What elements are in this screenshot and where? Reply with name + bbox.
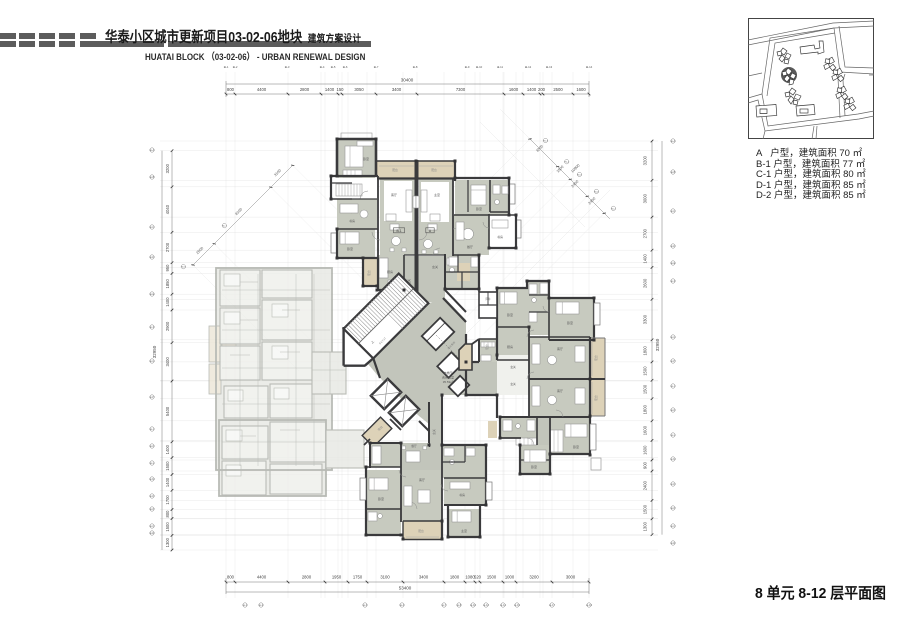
svg-text:Re-7: Re-7 xyxy=(222,226,228,228)
svg-text:1800: 1800 xyxy=(450,575,460,580)
svg-text:⊕-5: ⊕-5 xyxy=(331,65,336,69)
svg-text:3100: 3100 xyxy=(380,575,390,580)
svg-text:客厅: 客厅 xyxy=(557,388,563,393)
svg-text:阳台: 阳台 xyxy=(367,270,371,276)
svg-text:客厅: 客厅 xyxy=(557,346,563,351)
svg-text:⊕-4: ⊕-4 xyxy=(320,65,325,69)
svg-text:主室: 主室 xyxy=(434,192,440,197)
svg-text:⊕-3: ⊕-3 xyxy=(285,65,290,69)
svg-text:800: 800 xyxy=(165,510,170,518)
svg-text:⊕-A: ⊕-A xyxy=(150,149,155,152)
svg-text:1600: 1600 xyxy=(643,425,648,435)
svg-text:玄关: 玄关 xyxy=(432,264,438,269)
svg-text:4400: 4400 xyxy=(257,87,267,92)
svg-text:阳台: 阳台 xyxy=(431,168,437,172)
svg-text:⊕-H: ⊕-H xyxy=(150,396,155,399)
svg-text:1600: 1600 xyxy=(509,87,519,92)
svg-text:1400: 1400 xyxy=(165,444,170,454)
svg-text:⊕-14: ⊕-14 xyxy=(586,65,593,69)
svg-text:⊕-Q: ⊕-Q xyxy=(150,525,155,528)
svg-text:⊕-E: ⊕-E xyxy=(671,262,676,265)
svg-text:卧室: 卧室 xyxy=(363,156,369,161)
svg-text:2800: 2800 xyxy=(302,575,312,580)
svg-text:32950: 32950 xyxy=(152,345,157,358)
svg-text:⊕-10: ⊕-10 xyxy=(476,65,483,69)
svg-text:⊕-14: ⊕-14 xyxy=(500,604,506,607)
svg-text:⊕-M: ⊕-M xyxy=(670,458,675,461)
svg-text:3300: 3300 xyxy=(643,314,648,324)
svg-text:合用前室: 合用前室 xyxy=(442,375,454,380)
svg-text:2800: 2800 xyxy=(300,87,310,92)
svg-text:⊕-G: ⊕-G xyxy=(671,336,676,339)
svg-text:⊕-3: ⊕-3 xyxy=(363,604,368,607)
svg-text:53400: 53400 xyxy=(399,586,412,591)
svg-text:2700: 2700 xyxy=(165,242,170,252)
svg-text:1800: 1800 xyxy=(643,346,648,356)
svg-text:⊕-K: ⊕-K xyxy=(150,445,155,448)
svg-text:⊕-13: ⊕-13 xyxy=(546,65,553,69)
svg-text:⊕-7: ⊕-7 xyxy=(374,65,379,69)
svg-text:2900: 2900 xyxy=(165,321,170,331)
svg-text:Re-4: Re-4 xyxy=(564,162,570,164)
svg-text:⊕-A: ⊕-A xyxy=(671,140,676,143)
svg-text:1400: 1400 xyxy=(325,87,335,92)
svg-text:⊕-K: ⊕-K xyxy=(671,409,676,412)
svg-text:卧室: 卧室 xyxy=(476,206,482,211)
svg-text:客厅: 客厅 xyxy=(419,477,425,482)
svg-text:3000: 3000 xyxy=(566,575,576,580)
svg-text:主室: 主室 xyxy=(461,528,467,533)
svg-text:⊕-E: ⊕-E xyxy=(150,293,155,296)
svg-text:4040: 4040 xyxy=(165,204,170,214)
svg-text:800: 800 xyxy=(227,575,235,580)
svg-text:⊕-C: ⊕-C xyxy=(150,226,155,229)
svg-text:⊕-9: ⊕-9 xyxy=(465,65,470,69)
svg-text:⊕-L: ⊕-L xyxy=(671,434,676,437)
svg-text:⊕-1: ⊕-1 xyxy=(224,65,229,69)
svg-text:1400: 1400 xyxy=(527,87,537,92)
svg-text:⊕-M: ⊕-M xyxy=(149,478,154,481)
svg-text:30400: 30400 xyxy=(401,78,414,83)
svg-text:1500: 1500 xyxy=(165,461,170,471)
svg-text:书房: 书房 xyxy=(459,492,465,497)
svg-text:⊕-4: ⊕-4 xyxy=(400,604,405,607)
svg-text:3200: 3200 xyxy=(529,575,539,580)
svg-text:⊕-G: ⊕-G xyxy=(150,360,155,363)
svg-text:客厅: 客厅 xyxy=(391,192,397,197)
svg-text:电梯厅: 电梯厅 xyxy=(443,370,452,375)
svg-text:卧室: 卧室 xyxy=(531,464,537,469)
svg-text:⊕-15: ⊕-15 xyxy=(514,604,520,607)
svg-text:1300: 1300 xyxy=(643,521,648,531)
svg-text:阳台: 阳台 xyxy=(485,344,489,350)
svg-text:⊕-R: ⊕-R xyxy=(150,532,155,535)
svg-text:1500: 1500 xyxy=(643,366,648,376)
svg-text:1600: 1600 xyxy=(643,445,648,455)
svg-text:⊕-7: ⊕-7 xyxy=(442,604,447,607)
svg-text:150: 150 xyxy=(337,87,345,92)
svg-text:520: 520 xyxy=(474,575,482,580)
svg-text:⊕-D: ⊕-D xyxy=(671,245,676,248)
svg-text:阳台: 阳台 xyxy=(594,355,598,361)
svg-text:餐厅: 餐厅 xyxy=(411,444,417,448)
svg-text:⊕-2: ⊕-2 xyxy=(259,604,264,607)
svg-text:1600: 1600 xyxy=(576,87,586,92)
svg-text:Re-1: Re-1 xyxy=(611,208,617,210)
svg-text:Re-6: Re-6 xyxy=(594,191,600,193)
svg-text:⊕-6: ⊕-6 xyxy=(343,65,348,69)
svg-text:玄关: 玄关 xyxy=(432,429,436,435)
svg-text:Re-8: Re-8 xyxy=(181,267,187,269)
svg-text:阳台: 阳台 xyxy=(392,168,398,172)
svg-text:风井: 风井 xyxy=(485,297,491,301)
svg-text:4400: 4400 xyxy=(257,575,267,580)
svg-text:⊕-19: ⊕-19 xyxy=(586,604,592,607)
svg-text:⊕-1: ⊕-1 xyxy=(243,604,248,607)
svg-text:⊕-10: ⊕-10 xyxy=(470,604,476,607)
svg-text:200: 200 xyxy=(538,87,546,92)
svg-text:Re-5: Re-5 xyxy=(577,174,583,176)
svg-text:1400: 1400 xyxy=(165,297,170,307)
svg-text:900: 900 xyxy=(643,461,648,469)
svg-text:1500: 1500 xyxy=(165,522,170,532)
svg-text:7300: 7300 xyxy=(456,87,466,92)
svg-text:1850: 1850 xyxy=(165,278,170,288)
svg-text:3050: 3050 xyxy=(354,87,364,92)
svg-text:⊕-H: ⊕-H xyxy=(671,360,676,363)
svg-text:⊕-C: ⊕-C xyxy=(671,210,676,213)
svg-text:Re-3: Re-3 xyxy=(543,140,549,142)
svg-text:35.59㎡: 35.59㎡ xyxy=(443,379,454,384)
svg-text:3400: 3400 xyxy=(165,357,170,367)
svg-text:卧室: 卧室 xyxy=(347,246,353,251)
svg-text:玄关: 玄关 xyxy=(510,365,516,369)
svg-text:卧室: 卧室 xyxy=(567,320,573,325)
svg-text:书房: 书房 xyxy=(497,234,503,239)
svg-text:⊕-F: ⊕-F xyxy=(150,326,155,329)
svg-text:⊕-B: ⊕-B xyxy=(150,176,155,179)
svg-text:1400: 1400 xyxy=(165,477,170,487)
svg-text:1700: 1700 xyxy=(165,495,170,505)
svg-text:1500: 1500 xyxy=(643,504,648,514)
svg-text:⊕-B: ⊕-B xyxy=(671,171,676,174)
svg-text:卧室: 卧室 xyxy=(573,444,579,449)
svg-text:⊕-17: ⊕-17 xyxy=(549,604,555,607)
svg-text:1500: 1500 xyxy=(643,384,648,394)
svg-text:B-1: B-1 xyxy=(397,229,402,233)
svg-text:3200: 3200 xyxy=(165,163,170,173)
svg-text:⊕-8: ⊕-8 xyxy=(413,65,418,69)
svg-text:⊕-D: ⊕-D xyxy=(150,256,155,259)
svg-text:厨房: 厨房 xyxy=(507,344,513,349)
svg-text:8100: 8100 xyxy=(234,207,243,216)
svg-text:3000: 3000 xyxy=(643,193,648,203)
svg-text:⊕-2: ⊕-2 xyxy=(233,65,238,69)
svg-text:卧室: 卧室 xyxy=(378,496,384,501)
svg-text:⊕-P: ⊕-P xyxy=(150,508,155,511)
svg-text:阳台: 阳台 xyxy=(594,395,598,401)
svg-text:⊕-N: ⊕-N xyxy=(150,495,155,498)
svg-text:2600: 2600 xyxy=(643,278,648,288)
svg-text:⊕-F: ⊕-F xyxy=(671,280,676,283)
svg-text:⊕-R: ⊕-R xyxy=(671,542,676,545)
svg-text:卧室: 卧室 xyxy=(507,312,513,317)
svg-text:3100: 3100 xyxy=(273,169,282,178)
svg-text:⊕-Q: ⊕-Q xyxy=(671,525,676,528)
svg-text:⊕-8: ⊕-8 xyxy=(457,604,462,607)
svg-text:⊕-L: ⊕-L xyxy=(150,462,155,465)
svg-text:⊕-N: ⊕-N xyxy=(671,483,676,486)
svg-text:玄关: 玄关 xyxy=(406,279,411,285)
svg-text:3400: 3400 xyxy=(419,575,429,580)
svg-text:1800: 1800 xyxy=(643,404,648,414)
svg-text:950: 950 xyxy=(165,264,170,272)
svg-text:阳台: 阳台 xyxy=(418,529,424,533)
svg-text:1750: 1750 xyxy=(353,575,363,580)
svg-text:⊕-P: ⊕-P xyxy=(671,507,676,510)
svg-text:1500: 1500 xyxy=(487,575,497,580)
svg-text:2700: 2700 xyxy=(643,228,648,238)
svg-text:书房: 书房 xyxy=(349,218,355,223)
svg-text:2500: 2500 xyxy=(195,246,204,255)
svg-text:32950: 32950 xyxy=(655,338,660,351)
svg-text:⊕-12: ⊕-12 xyxy=(525,65,532,69)
svg-text:1400: 1400 xyxy=(643,253,648,263)
svg-text:2400: 2400 xyxy=(643,480,648,490)
svg-text:1000: 1000 xyxy=(505,575,515,580)
svg-text:餐厅: 餐厅 xyxy=(467,244,473,249)
svg-text:800: 800 xyxy=(227,87,235,92)
svg-text:3200: 3200 xyxy=(643,155,648,165)
svg-text:3400: 3400 xyxy=(392,87,402,92)
svg-text:⊕-12: ⊕-12 xyxy=(483,604,489,607)
svg-text:⊕-11: ⊕-11 xyxy=(497,65,504,69)
svg-text:1300: 1300 xyxy=(165,537,170,547)
svg-text:5400: 5400 xyxy=(165,406,170,416)
svg-text:玄关: 玄关 xyxy=(510,382,516,386)
svg-text:2500: 2500 xyxy=(553,87,563,92)
svg-text:1950: 1950 xyxy=(332,575,342,580)
svg-text:厨房: 厨房 xyxy=(387,269,393,274)
